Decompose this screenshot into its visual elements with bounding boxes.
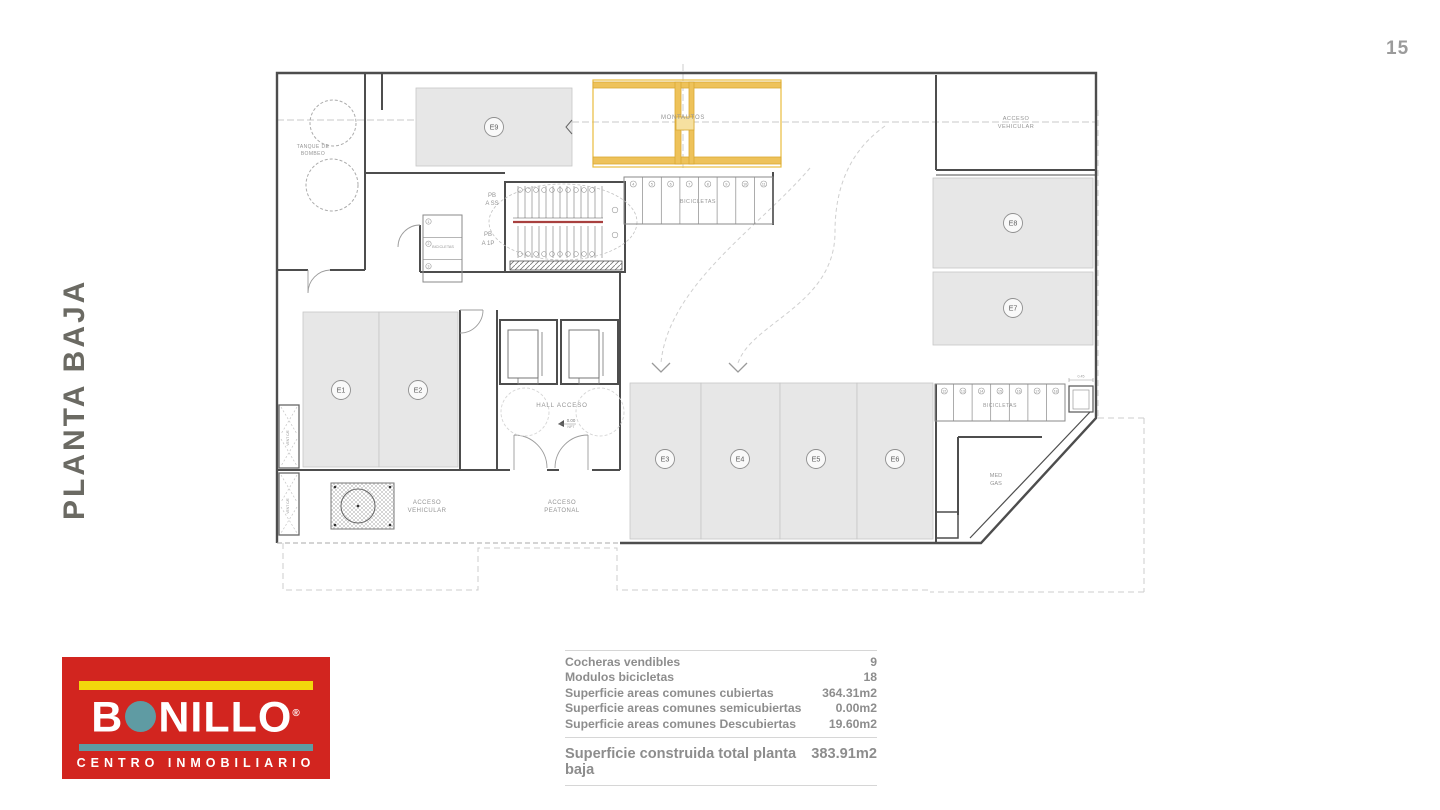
svg-text:13: 13 [961, 389, 965, 393]
svg-text:10: 10 [743, 182, 747, 186]
svg-text:2: 2 [428, 242, 430, 246]
page-title: PLANTA BAJA [58, 268, 92, 520]
space-label-e4: E4 [736, 455, 745, 464]
stair-label-pb-1p-2: A 1P [482, 241, 495, 247]
stair-label-pb-ss-1: PB [488, 193, 496, 199]
row-label: Superficie areas comunes Descubiertas [565, 717, 796, 732]
summary-total-row: Superficie construida total planta baja … [565, 737, 877, 786]
row-value: 9 [870, 655, 877, 670]
bike-rack-right-label: BICICLETAS [983, 403, 1017, 409]
dim-box: 0.45 [1069, 375, 1093, 413]
table-row: Cocheras vendibles 9 [565, 655, 877, 670]
floor-plan: TANQUE DE BOMBEO VENT C/E VENT C/E PB A … [270, 60, 1150, 605]
svg-text:15: 15 [998, 389, 1002, 393]
bike-rack-top-numbers: 4 5 6 7 8 9 10 11 [632, 182, 765, 186]
svg-text:8: 8 [707, 182, 709, 186]
svg-text:14: 14 [979, 389, 983, 393]
svg-text:12: 12 [942, 389, 946, 393]
vent-shaft-label: VENT C/E [286, 497, 290, 513]
tanque-label-line1: TANQUE DE [297, 144, 330, 150]
parking-fills [303, 88, 1093, 539]
svg-text:3: 3 [428, 265, 430, 269]
arrow-icon [652, 363, 670, 372]
space-label-e8: E8 [1009, 219, 1018, 228]
arrow-icon [729, 363, 747, 372]
svg-text:9: 9 [725, 182, 727, 186]
bike-rack-right-numbers: 12 13 14 15 16 17 18 [942, 389, 1057, 393]
svg-text:11: 11 [762, 182, 766, 186]
floor-plan-svg: TANQUE DE BOMBEO VENT C/E VENT C/E PB A … [270, 60, 1150, 605]
space-label-e9: E9 [490, 123, 499, 132]
acceso-peatonal-line2: PEATONAL [544, 508, 580, 514]
level-value: 0.00 [567, 418, 576, 423]
stair-label-pb-ss-2: A SS [485, 201, 498, 207]
table-row: Superficie areas comunes semicubiertas 0… [565, 701, 877, 716]
total-value: 383.91m2 [811, 746, 877, 762]
med-gas-line1: MED [990, 473, 1002, 479]
company-logo: BNILLO® CENTRO INMOBILIARIO [62, 657, 330, 779]
bike-rack-top-label: BICICLETAS [680, 199, 716, 205]
svg-text:4: 4 [632, 182, 634, 186]
acceso-vehicular-bottom-line2: VEHICULAR [408, 508, 447, 514]
space-label-e6: E6 [891, 455, 900, 464]
bike-rack-left-numbers: 1 2 3 [428, 220, 430, 269]
registered-mark: ® [292, 708, 300, 719]
montautos-label: MONTAUTOS [661, 115, 705, 121]
row-value: 18 [863, 670, 877, 685]
logo-brand: BNILLO® [62, 690, 330, 741]
table-row: Modulos bicicletas 18 [565, 670, 877, 685]
logo-yellow-bar [79, 681, 313, 690]
vent-shaft-label: VENT C/E [286, 429, 290, 445]
summary-table: Cocheras vendibles 9 Modulos bicicletas … [565, 650, 877, 786]
row-label: Superficie areas comunes semicubiertas [565, 701, 801, 716]
stairs [489, 184, 637, 270]
svg-text:17: 17 [1035, 389, 1039, 393]
svg-text:5: 5 [651, 182, 653, 186]
planter [331, 483, 394, 529]
tanque-label-line2: BOMBEO [301, 151, 325, 157]
summary-rows: Cocheras vendibles 9 Modulos bicicletas … [565, 650, 877, 737]
elevators [500, 320, 618, 384]
space-label-e5: E5 [812, 455, 821, 464]
svg-text:18: 18 [1054, 389, 1058, 393]
row-label: Superficie areas comunes cubiertas [565, 686, 774, 701]
svg-text:1: 1 [428, 220, 430, 224]
space-label-e2: E2 [414, 386, 423, 395]
logo-o-disc-icon [125, 701, 156, 732]
page-number: 15 [1386, 38, 1409, 60]
svg-text:16: 16 [1017, 389, 1021, 393]
space-label-e1: E1 [337, 386, 346, 395]
space-label-e3: E3 [661, 455, 670, 464]
montautos-structure [593, 80, 781, 167]
total-label: Superficie construida total planta baja [565, 746, 811, 778]
logo-teal-bar [79, 744, 313, 751]
stair-label-pb-1p-1: PB [484, 232, 492, 238]
bike-rack-left-label: BICICLETAS [432, 245, 454, 249]
stair-ramp-hatch [510, 261, 622, 270]
table-row: Superficie areas comunes cubiertas 364.3… [565, 686, 877, 701]
row-label: Modulos bicicletas [565, 670, 674, 685]
row-label: Cocheras vendibles [565, 655, 680, 670]
table-row: Superficie areas comunes Descubiertas 19… [565, 717, 877, 732]
acceso-vehicular-top-line2: VEHICULAR [998, 124, 1035, 130]
svg-text:6: 6 [670, 182, 672, 186]
space-label-e7: E7 [1009, 304, 1018, 313]
acceso-vehicular-bottom-line1: ACCESO [413, 500, 441, 506]
row-value: 364.31m2 [822, 686, 877, 701]
med-gas-line2: GAS [990, 481, 1002, 487]
level-marker: 0.00 NPT [558, 418, 576, 429]
row-value: 19.60m2 [829, 717, 877, 732]
level-npt: NPT [567, 425, 575, 429]
logo-brand-prefix: B [91, 693, 123, 741]
logo-brand-suffix: NILLO [158, 693, 292, 741]
row-value: 0.00m2 [836, 701, 877, 716]
acceso-peatonal-line1: ACCESO [548, 500, 576, 506]
hall-turning-circles [501, 388, 624, 436]
svg-text:7: 7 [688, 182, 690, 186]
logo-tagline: CENTRO INMOBILIARIO [62, 756, 330, 770]
acceso-vehicular-top-line1: ACCESO [1003, 116, 1030, 122]
hall-acceso-label: HALL ACCESO [536, 402, 588, 409]
dim-value: 0.45 [1078, 375, 1085, 379]
